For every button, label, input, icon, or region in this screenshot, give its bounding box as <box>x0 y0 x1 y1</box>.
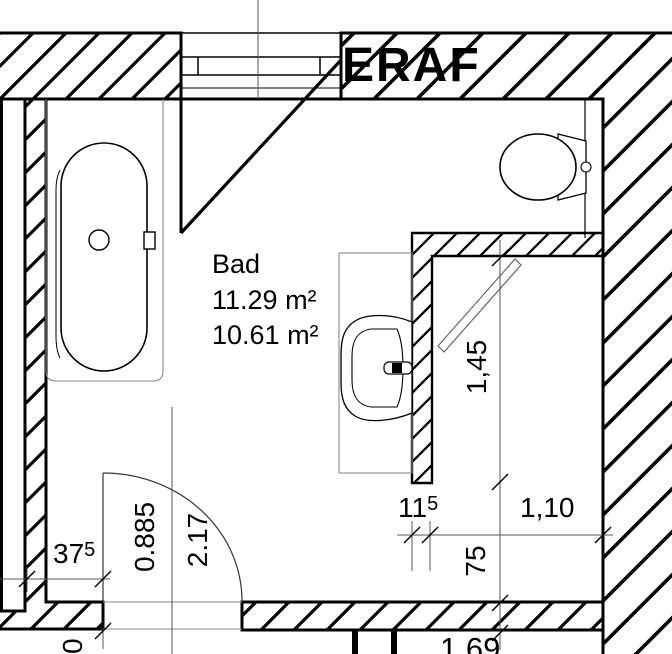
bathtub-drain <box>89 230 109 250</box>
dim-partition-main: 11 <box>398 492 427 523</box>
wall-stub-left <box>352 630 358 654</box>
window <box>181 33 341 88</box>
dim-20: 20 <box>58 619 88 654</box>
wall-edge-left <box>0 99 3 611</box>
toilet <box>500 134 591 200</box>
slope-diagonal <box>181 60 341 233</box>
toilet-bowl <box>500 134 576 200</box>
washbasin-valve <box>392 363 402 373</box>
floor-plan-drawing <box>0 0 672 654</box>
wall-bottom <box>242 602 603 630</box>
wall-top-left <box>0 33 181 99</box>
floor-plan: ERAF Bad 11.29 m² 10.61 m² 375 0.885 2.1… <box>0 0 672 654</box>
bathtub-apron-line <box>56 170 60 358</box>
dim-wall-375: 375 <box>53 539 95 568</box>
bathtub <box>46 99 163 381</box>
room-area1-label: 11.29 m² <box>212 286 317 314</box>
bathtub-faucet <box>144 232 155 249</box>
dim-75: 75 <box>461 526 491 596</box>
wall-stub-right <box>391 630 397 654</box>
dim-wall-375-main: 37 <box>53 538 84 569</box>
dim-partition-115: 115 <box>398 493 438 522</box>
dim-partition-sup: 5 <box>427 493 438 515</box>
dim-wall-375-sup: 5 <box>84 539 95 561</box>
washbasin <box>339 253 412 473</box>
toilet-valve <box>581 162 591 172</box>
wall-label: ERAF <box>342 41 481 91</box>
bathtub-rim <box>61 143 147 371</box>
dim-door-width: 0.885 <box>130 487 160 587</box>
dim-169: 1,69 <box>440 633 500 654</box>
room-area2-label: 10.61 m² <box>212 321 319 349</box>
dim-recess-width: 1,10 <box>520 493 575 522</box>
dim-door-height: 2.17 <box>183 495 213 585</box>
dim-recess-depth: 1,45 <box>462 332 492 402</box>
room-name-label: Bad <box>212 250 260 278</box>
